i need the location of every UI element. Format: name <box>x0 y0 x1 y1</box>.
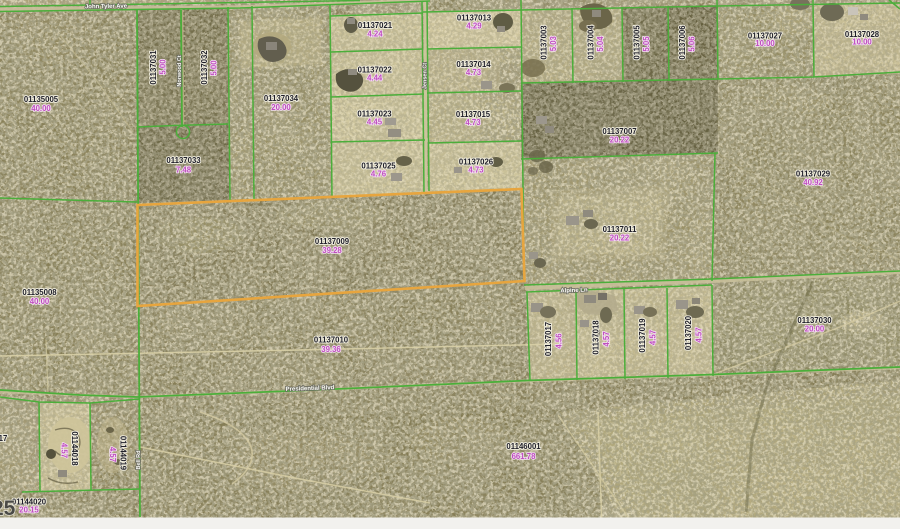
svg-text:01137019: 01137019 <box>638 318 647 353</box>
svg-text:4.73: 4.73 <box>468 166 484 175</box>
svg-text:40.00: 40.00 <box>30 297 50 306</box>
svg-text:40.92: 40.92 <box>803 178 823 187</box>
svg-text:20.22: 20.22 <box>610 136 630 145</box>
svg-text:39.36: 39.36 <box>321 345 341 354</box>
svg-text:Bell Rd: Bell Rd <box>136 451 142 470</box>
svg-text:01137034: 01137034 <box>264 94 299 103</box>
svg-text:01137003: 01137003 <box>540 25 549 60</box>
svg-text:4.57: 4.57 <box>108 447 117 462</box>
svg-text:01144018: 01144018 <box>70 431 79 466</box>
svg-text:5.00: 5.00 <box>210 60 219 76</box>
svg-text:5.00: 5.00 <box>159 59 168 75</box>
svg-text:10.00: 10.00 <box>852 38 872 47</box>
svg-text:01137020: 01137020 <box>684 315 693 350</box>
svg-text:4.73: 4.73 <box>466 68 482 77</box>
svg-text:5.04: 5.04 <box>596 36 605 52</box>
svg-text:01146001: 01146001 <box>506 442 541 451</box>
svg-text:10.00: 10.00 <box>755 39 775 48</box>
svg-text:7.48: 7.48 <box>176 166 192 175</box>
svg-text:01137010: 01137010 <box>314 336 349 345</box>
svg-text:4.56: 4.56 <box>555 333 564 349</box>
svg-text:01137031: 01137031 <box>149 50 158 85</box>
svg-text:01137004: 01137004 <box>587 25 596 60</box>
svg-text:01135005: 01135005 <box>24 95 59 104</box>
svg-text:01137033: 01137033 <box>166 156 201 165</box>
svg-text:4.73: 4.73 <box>465 118 481 127</box>
svg-text:4.57: 4.57 <box>602 331 611 346</box>
svg-text:01137017: 01137017 <box>544 322 553 356</box>
svg-text:01137005: 01137005 <box>633 25 642 60</box>
svg-text:4.44: 4.44 <box>367 74 383 83</box>
svg-text:5.06: 5.06 <box>688 36 697 52</box>
svg-text:01137018: 01137018 <box>592 320 601 355</box>
svg-text:20.22: 20.22 <box>610 234 630 243</box>
svg-text:Alpine Ln: Alpine Ln <box>560 288 588 295</box>
svg-text:01137032: 01137032 <box>200 50 209 85</box>
svg-text:20.15: 20.15 <box>19 506 39 515</box>
svg-text:01137006: 01137006 <box>678 25 687 60</box>
svg-text:17: 17 <box>0 434 7 443</box>
svg-text:5.05: 5.05 <box>642 36 651 52</box>
svg-text:01144019: 01144019 <box>119 436 128 471</box>
svg-text:20.00: 20.00 <box>271 103 291 112</box>
svg-text:4.24: 4.24 <box>367 30 383 39</box>
svg-text:39.28: 39.28 <box>322 246 342 255</box>
svg-text:Norwood Ct: Norwood Ct <box>177 55 183 86</box>
svg-text:01135008: 01135008 <box>22 288 57 297</box>
svg-text:4.29: 4.29 <box>466 22 482 31</box>
svg-text:4.45: 4.45 <box>367 118 383 127</box>
svg-text:Jensen Ct: Jensen Ct <box>423 63 429 89</box>
svg-text:661.78: 661.78 <box>512 452 537 461</box>
svg-text:4.57: 4.57 <box>60 443 69 458</box>
svg-text:20.00: 20.00 <box>805 325 825 334</box>
svg-text:01137009: 01137009 <box>315 237 350 246</box>
svg-text:4.57: 4.57 <box>695 327 704 342</box>
svg-text:40.00: 40.00 <box>31 104 51 113</box>
svg-text:4.57: 4.57 <box>649 330 658 345</box>
svg-text:25: 25 <box>0 497 16 520</box>
svg-text:5.03: 5.03 <box>549 35 558 51</box>
svg-text:4.76: 4.76 <box>371 170 387 179</box>
svg-text:John Tyler Ave: John Tyler Ave <box>85 4 128 11</box>
